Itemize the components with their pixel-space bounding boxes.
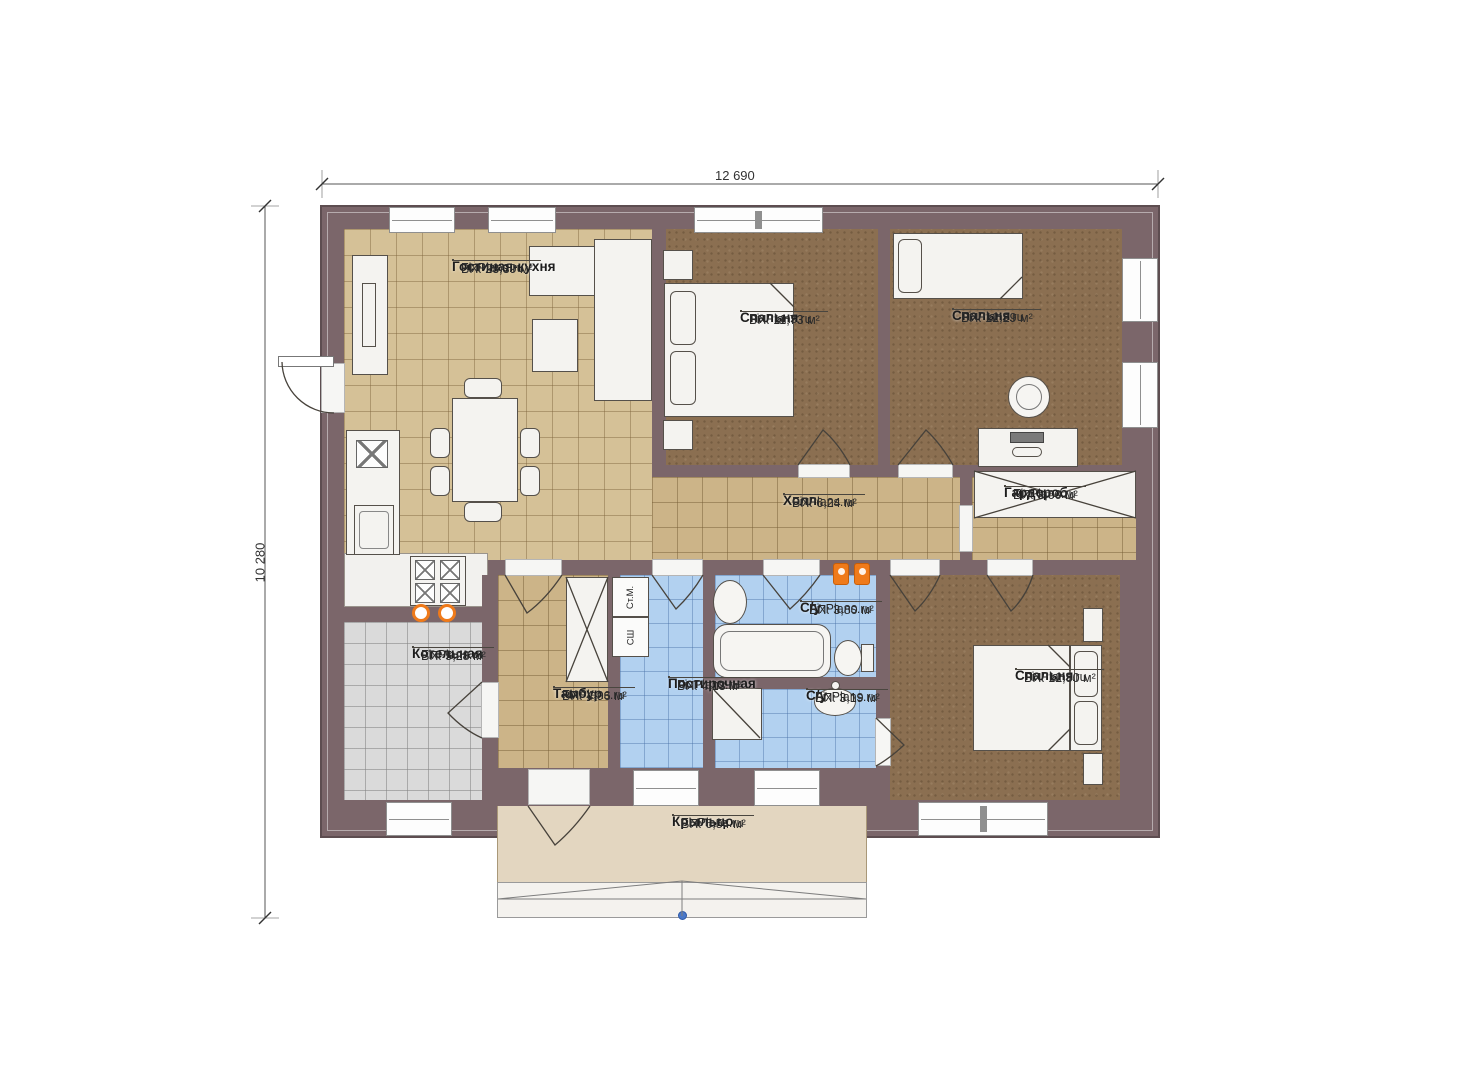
dimension-lines [0, 0, 1474, 1080]
floor-plan: 12 690 10 280 [0, 0, 1474, 1080]
dimension-width-label: 12 690 [715, 168, 755, 183]
dimension-height-label: 10 280 [252, 543, 267, 583]
